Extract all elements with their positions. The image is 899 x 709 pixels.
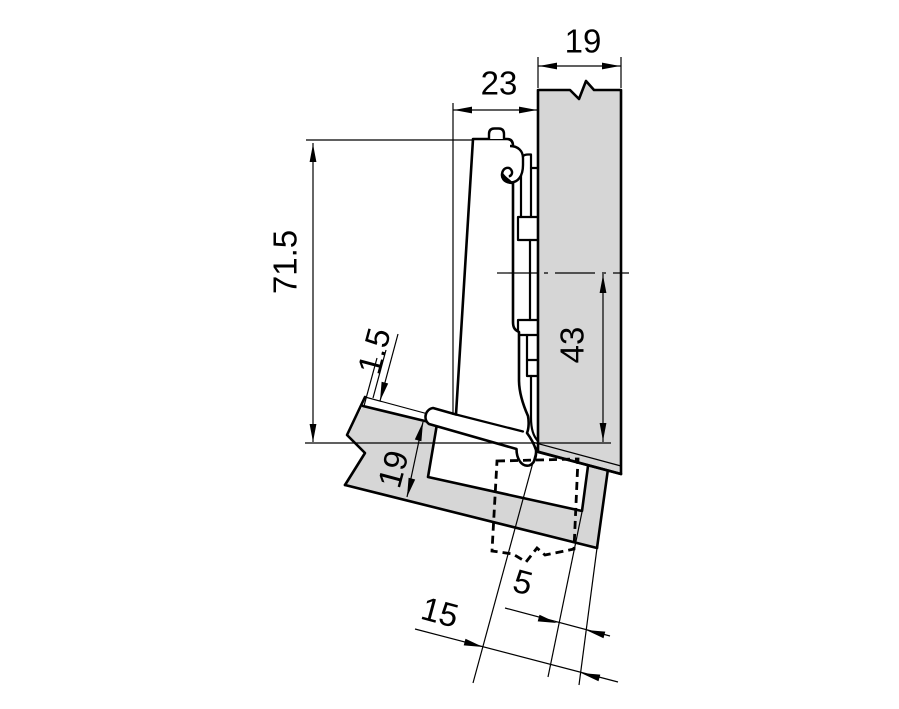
side-panel-outline bbox=[538, 81, 621, 474]
edge-extension-3 bbox=[579, 548, 597, 685]
adjustment-screw bbox=[489, 129, 504, 140]
dim-label-edge-distance: 15 bbox=[417, 589, 462, 634]
dim-label-cup-edge: 5 bbox=[509, 562, 536, 602]
dim-label-overall-height: 71.5 bbox=[267, 230, 304, 294]
dim-label-gap: 1.5 bbox=[350, 324, 398, 378]
technical-drawing-canvas: 19 23 71.5 43 1.5 19 5 15 bbox=[0, 0, 899, 709]
hinge-dimension-drawing: 19 23 71.5 43 1.5 19 5 15 bbox=[0, 0, 899, 709]
dim-label-panel-thickness: 19 bbox=[565, 23, 602, 60]
dim-label-arm-clearance: 23 bbox=[481, 65, 518, 102]
hinge-arm-body bbox=[425, 139, 536, 466]
hinge-arm bbox=[425, 129, 536, 466]
cabinet-side-panel bbox=[538, 81, 621, 474]
dim-label-plate-distance: 43 bbox=[554, 327, 591, 364]
